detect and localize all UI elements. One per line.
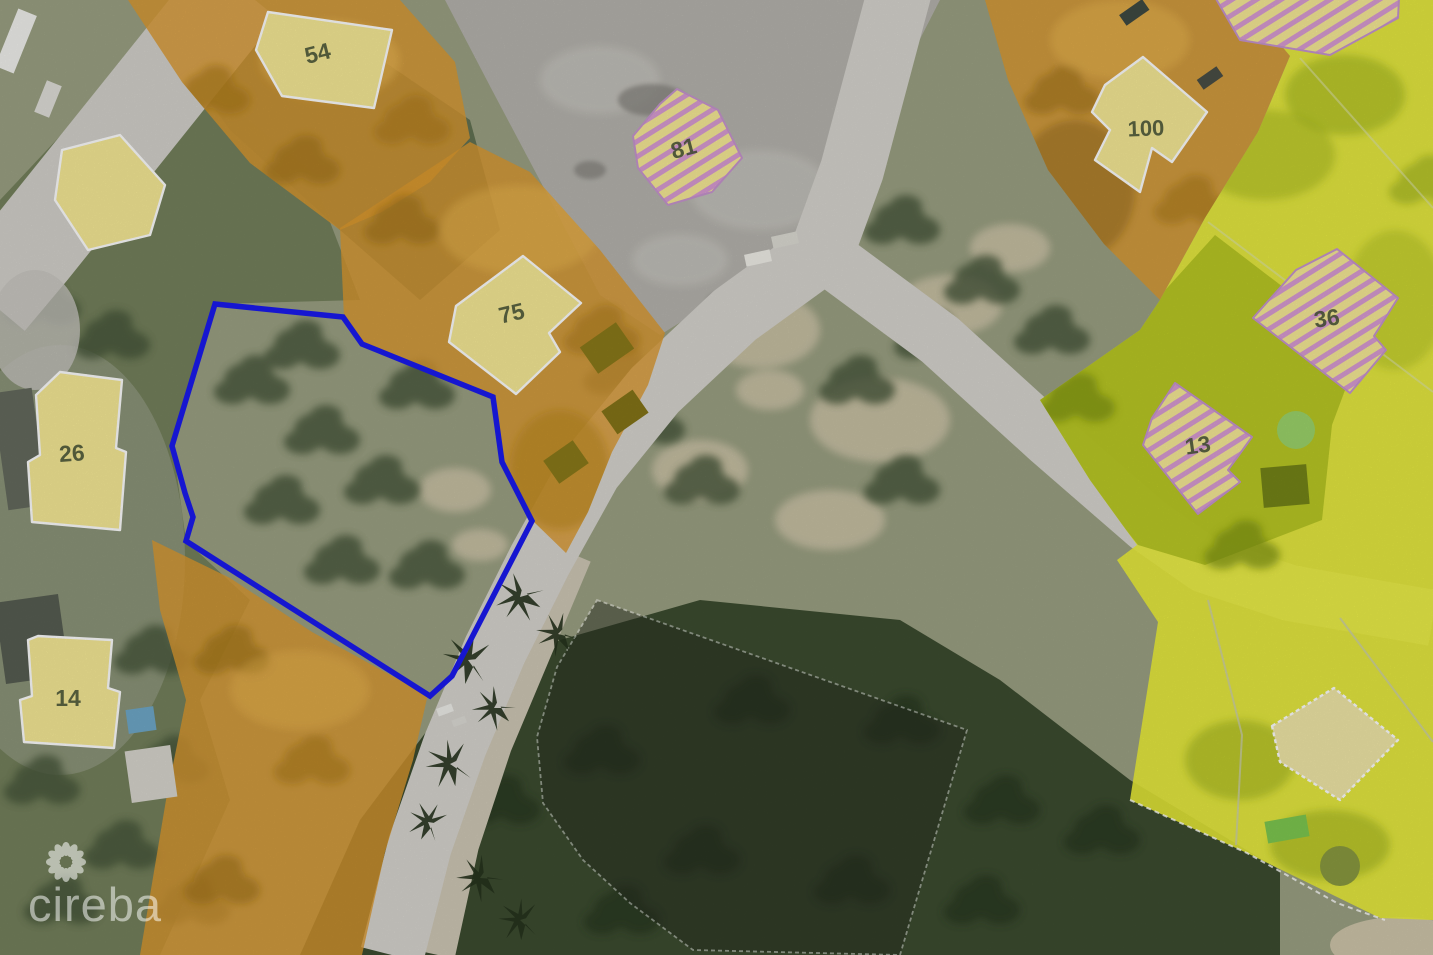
map-canvas: 54817510036132614	[0, 0, 1433, 955]
aerial-texture-grain	[0, 0, 1433, 955]
parcel-label-26: 26	[58, 439, 85, 467]
parcel-label-100: 100	[1127, 115, 1165, 141]
parcel-label-14: 14	[55, 685, 81, 711]
parcel-label-13: 13	[1183, 430, 1212, 459]
aerial-parcel-map: 54817510036132614 cireba	[0, 0, 1433, 955]
parcel-label-36: 36	[1312, 303, 1341, 332]
